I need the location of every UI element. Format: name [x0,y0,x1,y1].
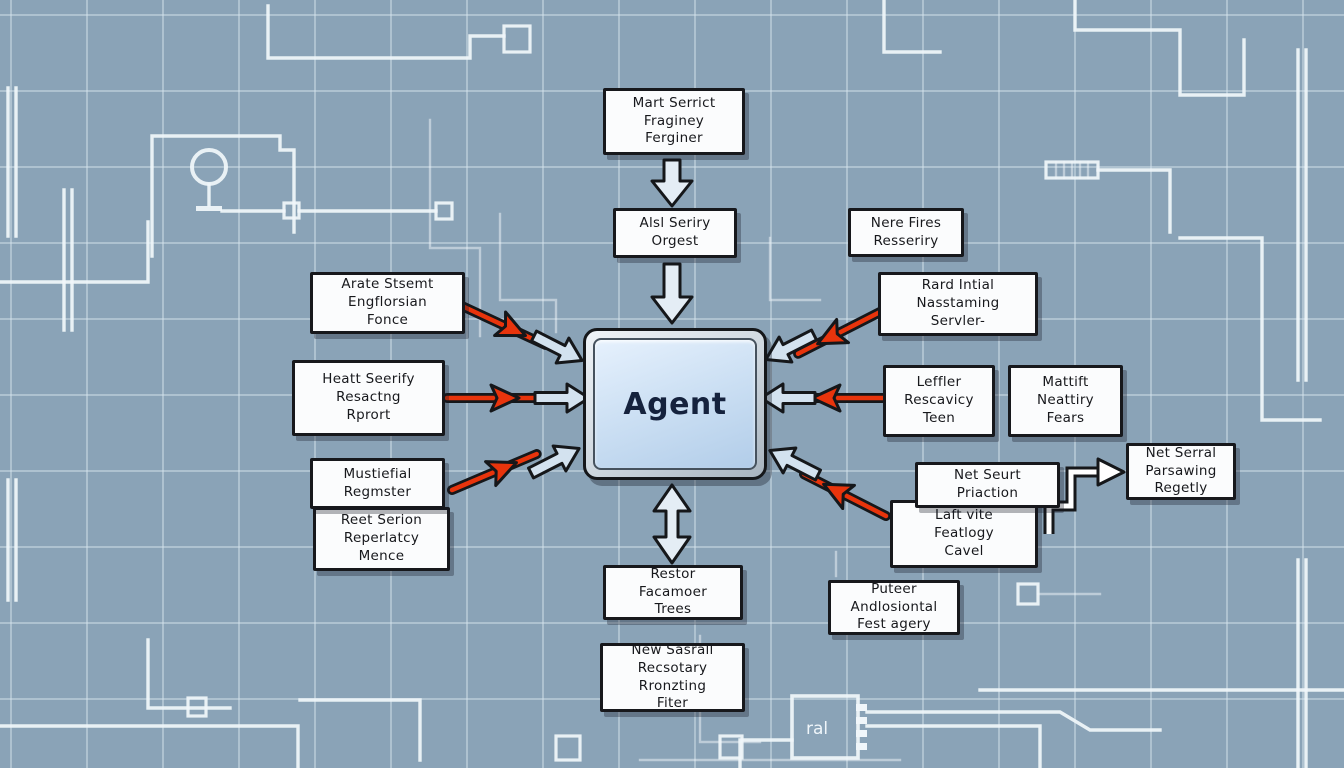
chip-decor-icon: ral [740,696,1160,768]
double-arrow-bottom [654,485,690,563]
diagram-node-mart-serrict: Mart Serrict Fraginey Ferginer [603,88,745,155]
red-arrow-left-bottom [447,442,542,502]
diagram-node-net-serral: Net Serral Parsawing Regetly [1126,443,1236,500]
red-arrow-left-top [457,294,551,356]
diagram-node-net-seurt: Net Seurt Priaction [915,462,1060,508]
agent-node-panel: Agent [593,338,757,470]
diagram-node-heatt-seerify: Heatt Seerify Resactng Rprort [292,360,445,436]
blue-arrow-right-middle [761,384,815,412]
down-arrow-top-1 [652,160,692,206]
blue-arrow-left-bottom [525,436,586,485]
diagram-node-restor: Restor Facamoer Trees [603,565,743,620]
diagram-node-puteer: Puteer Andlosiontal Fest agery [828,580,960,635]
blue-arrow-right-bottom [764,438,825,487]
diagram-node-arate-stsemt: Arate Stsemt Engflorsian Fonce [310,272,465,334]
down-arrow-top-2 [652,264,692,323]
blue-arrow-left-top [528,324,589,373]
stepped-connector [1049,459,1124,534]
agent-node: Agent [583,328,767,480]
magnifier-decor-icon [152,136,452,256]
diagram-node-nere-fires: Nere Fires Resseriry [848,208,964,257]
diagram-node-rard-intial: Rard Intial Nasstaming Servler- [878,272,1038,336]
blue-arrow-left-middle [535,384,589,412]
diagram-node-new-sasrall: New Sasrall Recsotary Rronzting Fiter [600,643,745,712]
chip-decor-label: ral [806,719,828,739]
circuit-blueprint-canvas: ral [0,0,1344,768]
diagram-node-laft-vite: Laft vite Featlogy Cavel [890,500,1038,568]
red-arrow-left-middle [447,385,543,411]
diagram-node-mustiefial: Mustiefial Regmster [310,458,445,509]
diagram-node-alsl-seriry: Alsl Seriry Orgest [613,208,737,258]
diagram-node-mattift: Mattift Neattiry Fears [1008,365,1123,437]
agent-label: Agent [623,387,726,422]
diagram-node-reet-serion: Reet Serion Reperlatcy Mence [313,507,450,571]
diagram-node-leffler: Leffler Rescavicy Teen [883,365,995,437]
